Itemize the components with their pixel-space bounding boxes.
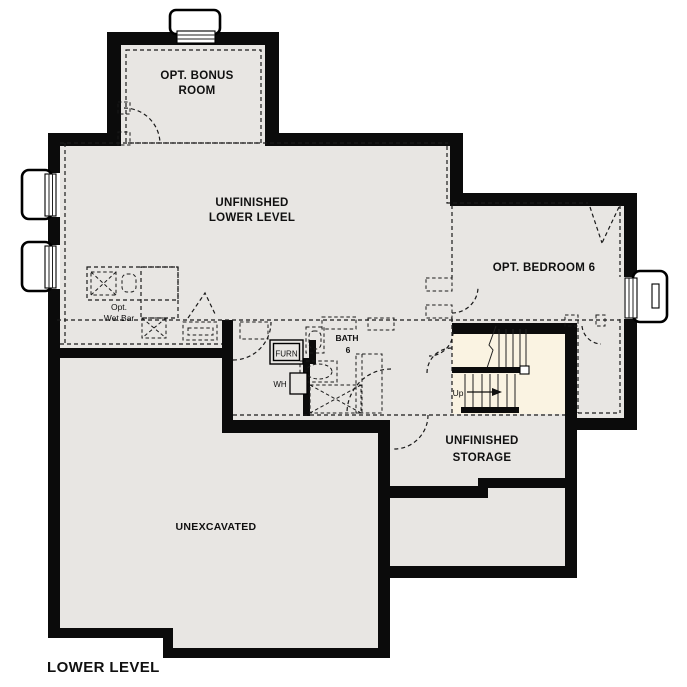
- window-frame-left-2: [45, 246, 56, 288]
- floor-unexcavated: [60, 358, 378, 630]
- window-frame-right: [625, 278, 637, 318]
- wall-left-top: [48, 133, 121, 146]
- wall-bonus-left: [107, 32, 121, 146]
- label-storage-2: STORAGE: [453, 452, 512, 464]
- label-lower-level-2: LOWER LEVEL: [209, 212, 295, 224]
- label-bath6-1: BATH: [336, 333, 359, 343]
- wetbar-label-line1: Opt.: [111, 302, 127, 312]
- stair-bottom-bar: [461, 407, 519, 413]
- floorplan-page: Opt. Wet Bar FURN WH: [0, 0, 687, 687]
- wall-stub-mech-2: [309, 340, 316, 364]
- wall-bottom-left: [48, 628, 173, 638]
- label-bonus-room-1: OPT. BONUS: [160, 70, 233, 82]
- floor-unexcavated-step: [173, 620, 378, 650]
- wall-top-right-2: [450, 193, 637, 206]
- label-bath6-2: 6: [346, 345, 351, 355]
- furnace-label: FURN: [275, 350, 297, 359]
- water-heater-box: [290, 373, 307, 394]
- label-unexcavated: UNEXCAVATED: [176, 521, 257, 533]
- wall-stair-right: [565, 323, 577, 578]
- stair-newel: [520, 366, 529, 374]
- wetbar-label-line2: Wet Bar: [104, 313, 135, 323]
- chimney-vent: [177, 31, 215, 43]
- wall-bonus-right: [265, 32, 279, 146]
- chimney-top: [170, 10, 220, 34]
- stair-landing-bar: [452, 367, 528, 373]
- wall-top-right-1: [265, 133, 463, 146]
- wall-unexcavated-right: [378, 420, 390, 658]
- label-bedroom6: OPT. BEDROOM 6: [493, 262, 596, 274]
- wall-unexcavated-top: [48, 348, 233, 358]
- window-well-right: [633, 271, 667, 322]
- label-bonus-room-2: ROOM: [179, 85, 216, 97]
- floor-crawlspace-step: [488, 488, 565, 566]
- wall-mid-vertical: [222, 320, 233, 433]
- plan-title: LOWER LEVEL: [47, 659, 160, 676]
- wall-storage-bottom-right: [478, 478, 577, 488]
- floor-stairwell: [452, 334, 565, 414]
- stairs-lower-flight: [465, 374, 515, 407]
- wall-bath-bottom: [222, 420, 390, 433]
- window-frame-left-1: [45, 174, 56, 216]
- window-handle-right: [652, 284, 659, 308]
- floorplan-drawing: Opt. Wet Bar FURN WH: [0, 0, 687, 687]
- label-storage-1: UNFINISHED: [445, 435, 518, 447]
- wall-bottom: [163, 648, 390, 658]
- wall-crawlspace-bottom: [378, 566, 577, 578]
- wall-storage-bottom-left: [378, 486, 488, 498]
- wall-stairwell-top: [452, 323, 577, 334]
- floor-storage: [390, 413, 565, 486]
- water-heater-label: WH: [273, 380, 287, 389]
- stairs-up-label: Up: [453, 388, 464, 398]
- label-lower-level-1: UNFINISHED: [215, 197, 288, 209]
